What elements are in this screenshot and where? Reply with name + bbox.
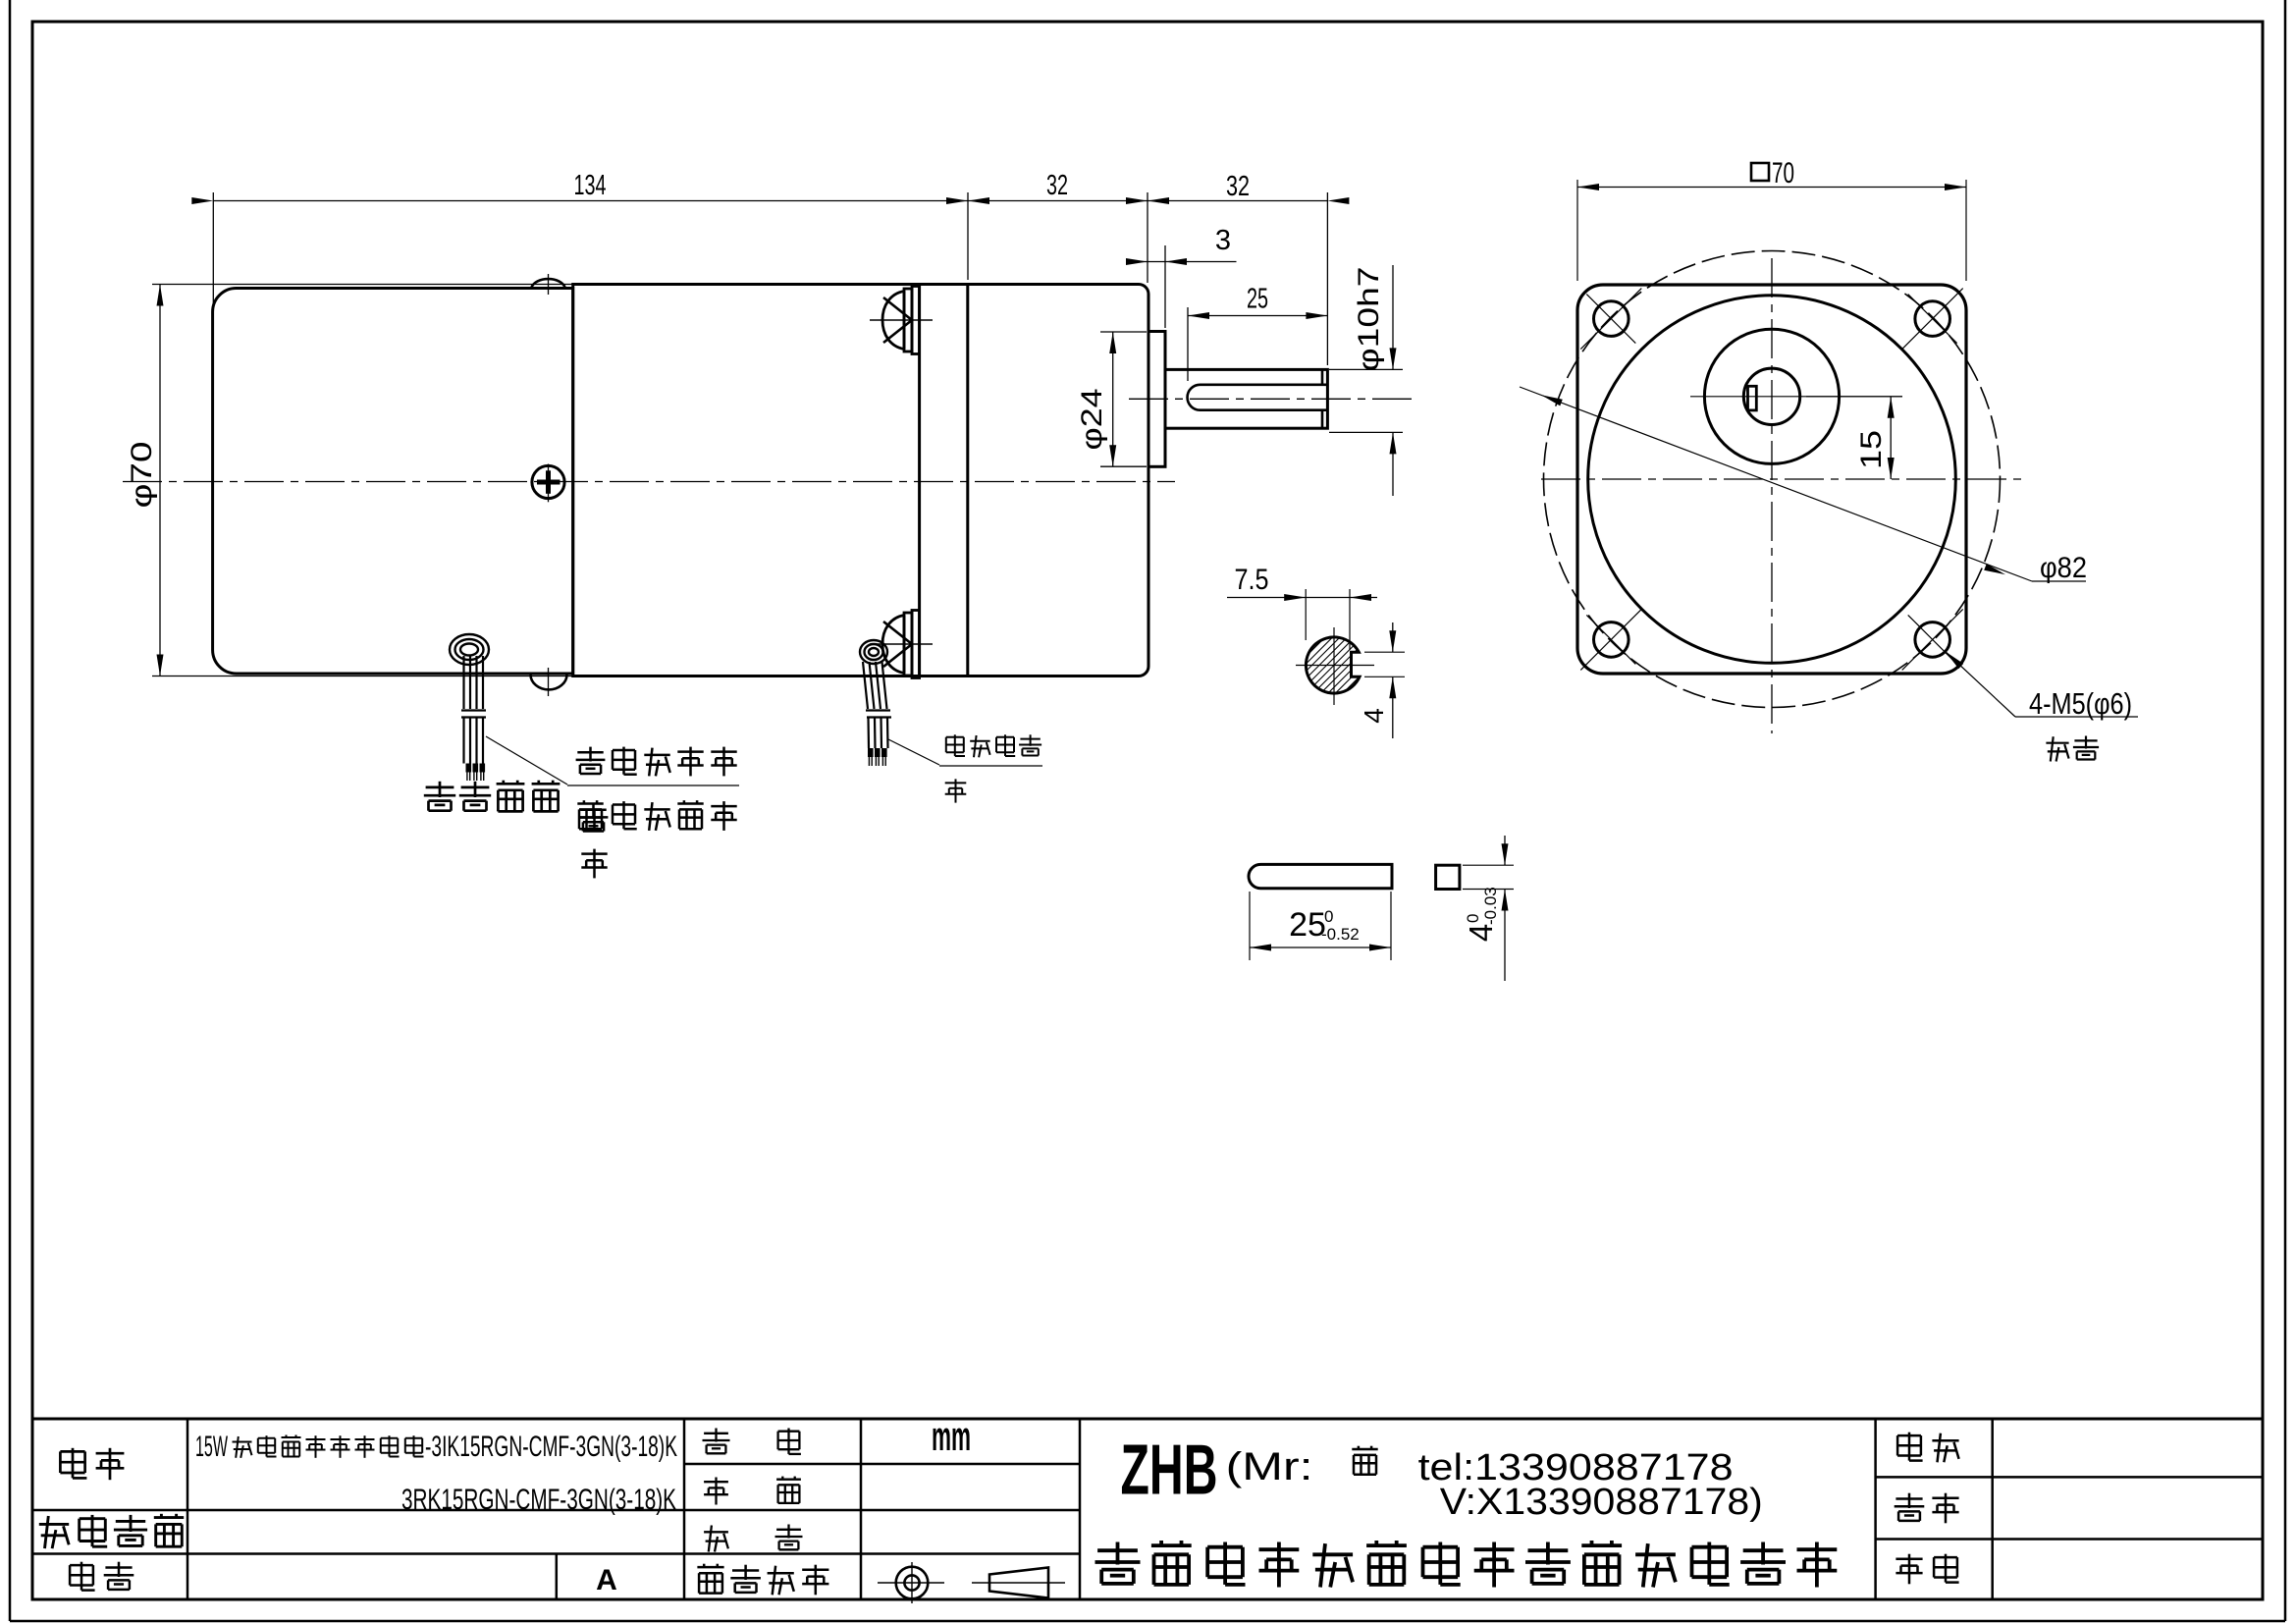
svg-text:3RK15RGN-CMF-3GN(3-18)K: 3RK15RGN-CMF-3GN(3-18)K	[401, 1484, 676, 1516]
svg-text:φ70: φ70	[126, 442, 158, 509]
svg-text:A: A	[596, 1564, 617, 1596]
svg-text:0: 0	[1324, 907, 1333, 926]
svg-text:φ82: φ82	[2040, 552, 2087, 584]
svg-text:mm: mm	[932, 1413, 971, 1459]
svg-text:-3IK15RGN-CMF-3GN(3-18)K: -3IK15RGN-CMF-3GN(3-18)K	[425, 1431, 677, 1463]
svg-text:4-M5(φ6): 4-M5(φ6)	[2029, 686, 2132, 721]
svg-text:(Mr:: (Mr:	[1226, 1445, 1313, 1488]
svg-text:3: 3	[1215, 225, 1231, 256]
svg-text:25: 25	[1247, 284, 1268, 315]
svg-text:32: 32	[1046, 170, 1068, 201]
svg-text:15W: 15W	[195, 1431, 228, 1463]
svg-text:4: 4	[1463, 924, 1499, 942]
svg-text:φ24: φ24	[1076, 389, 1108, 451]
svg-text:32: 32	[1226, 171, 1250, 202]
svg-text:-0.03: -0.03	[1481, 887, 1500, 925]
svg-text:7.5: 7.5	[1235, 564, 1269, 596]
svg-text:φ10h7: φ10h7	[1353, 267, 1385, 372]
svg-text:70: 70	[1772, 157, 1794, 189]
svg-text:0: 0	[1464, 914, 1482, 923]
svg-text:V:X13390887178): V:X13390887178)	[1440, 1482, 1763, 1523]
svg-text:ZHB: ZHB	[1121, 1432, 1218, 1510]
svg-text:-0.52: -0.52	[1321, 925, 1360, 944]
svg-text:134: 134	[574, 170, 607, 201]
svg-text:4: 4	[1359, 708, 1389, 724]
svg-text:15: 15	[1855, 430, 1888, 469]
